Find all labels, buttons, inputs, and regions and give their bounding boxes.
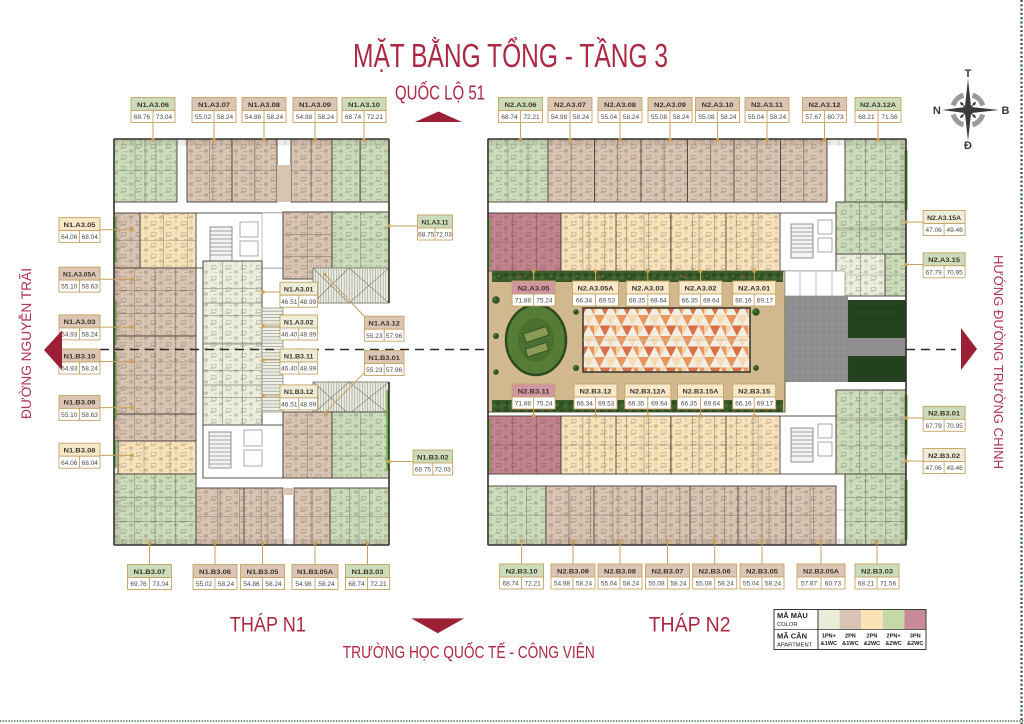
svg-text:N2.B3.12: N2.B3.12 bbox=[580, 388, 612, 395]
svg-text:49.46: 49.46 bbox=[946, 465, 963, 472]
svg-text:55.10: 55.10 bbox=[61, 284, 78, 291]
svg-text:N2.B3.15A: N2.B3.15A bbox=[683, 388, 719, 395]
svg-text:58.24: 58.24 bbox=[720, 114, 737, 121]
svg-text:69.64: 69.64 bbox=[704, 401, 721, 408]
svg-text:B: B bbox=[1002, 105, 1010, 117]
svg-text:73.04: 73.04 bbox=[156, 114, 173, 121]
svg-text:MÃ CĂN: MÃ CĂN bbox=[777, 632, 807, 641]
svg-text:71.56: 71.56 bbox=[881, 114, 898, 121]
svg-text:2PN: 2PN bbox=[867, 634, 878, 640]
svg-text:55.08: 55.08 bbox=[698, 114, 715, 121]
svg-text:58.24: 58.24 bbox=[267, 114, 284, 121]
svg-text:APARTMENT: APARTMENT bbox=[777, 643, 813, 649]
svg-text:N1.B3.01: N1.B3.01 bbox=[368, 355, 400, 362]
svg-text:N1.B3.10: N1.B3.10 bbox=[64, 353, 96, 360]
svg-text:66.34: 66.34 bbox=[577, 401, 594, 408]
svg-text:N2.B3.08: N2.B3.08 bbox=[604, 568, 636, 575]
svg-text:75.24: 75.24 bbox=[536, 401, 553, 408]
svg-text:58.24: 58.24 bbox=[82, 332, 99, 339]
svg-text:69.53: 69.53 bbox=[599, 298, 616, 305]
svg-text:69.64: 69.64 bbox=[651, 401, 668, 408]
svg-text:58.24: 58.24 bbox=[318, 581, 335, 588]
svg-text:69.53: 69.53 bbox=[598, 401, 615, 408]
svg-text:72.21: 72.21 bbox=[524, 581, 541, 588]
svg-text:N1.A3.10: N1.A3.10 bbox=[348, 102, 380, 109]
svg-text:58.24: 58.24 bbox=[576, 581, 593, 588]
svg-text:60.73: 60.73 bbox=[827, 114, 844, 121]
svg-text:N1.A3.03: N1.A3.03 bbox=[64, 319, 96, 326]
svg-text:N1.B3.06: N1.B3.06 bbox=[199, 569, 231, 576]
svg-text:54.86: 54.86 bbox=[245, 114, 262, 121]
svg-text:69.64: 69.64 bbox=[703, 298, 720, 305]
svg-text:70.95: 70.95 bbox=[946, 269, 963, 276]
svg-text:69.17: 69.17 bbox=[757, 401, 774, 408]
svg-text:58.24: 58.24 bbox=[265, 581, 282, 588]
svg-text:QUỐC LỘ 51: QUỐC LỘ 51 bbox=[395, 81, 485, 105]
svg-text:58.24: 58.24 bbox=[218, 581, 235, 588]
svg-text:N2.B3.15: N2.B3.15 bbox=[738, 388, 770, 395]
svg-text:N2.A3.15: N2.A3.15 bbox=[928, 257, 960, 264]
svg-text:66.16: 66.16 bbox=[735, 298, 752, 305]
svg-text:N2.B3.12A: N2.B3.12A bbox=[630, 388, 666, 395]
svg-text:71.56: 71.56 bbox=[880, 581, 897, 588]
svg-text:N2.A3.10: N2.A3.10 bbox=[702, 102, 734, 109]
svg-text:N1.A3.06: N1.A3.06 bbox=[137, 102, 169, 109]
svg-text:N1.A3.08: N1.A3.08 bbox=[248, 102, 280, 109]
svg-text:68.04: 68.04 bbox=[82, 460, 99, 467]
svg-text:69.76: 69.76 bbox=[130, 581, 147, 588]
svg-text:58.24: 58.24 bbox=[673, 114, 690, 121]
svg-text:N2.B3.05: N2.B3.05 bbox=[746, 568, 778, 575]
svg-text:66.34: 66.34 bbox=[576, 298, 593, 305]
svg-text:N2.B3.11: N2.B3.11 bbox=[518, 388, 550, 395]
svg-text:N1.A3.11: N1.A3.11 bbox=[422, 219, 449, 226]
svg-text:68.21: 68.21 bbox=[858, 114, 875, 121]
svg-text:&2WC: &2WC bbox=[907, 641, 923, 647]
svg-text:Đ: Đ bbox=[964, 140, 972, 152]
svg-text:54.98: 54.98 bbox=[554, 581, 571, 588]
svg-text:TRƯỜNG HỌC QUỐC TẾ - CÔNG VIÊN: TRƯỜNG HỌC QUỐC TẾ - CÔNG VIÊN bbox=[343, 641, 595, 662]
svg-text:55.04: 55.04 bbox=[601, 581, 618, 588]
svg-text:N2.B3.07: N2.B3.07 bbox=[652, 568, 684, 575]
svg-text:N2.A3.05: N2.A3.05 bbox=[518, 285, 550, 292]
svg-text:72.03: 72.03 bbox=[435, 467, 452, 474]
svg-text:MÃ MÀU: MÃ MÀU bbox=[777, 611, 808, 620]
svg-text:66.35: 66.35 bbox=[681, 401, 698, 408]
svg-text:N1.A3.02: N1.A3.02 bbox=[284, 319, 314, 326]
svg-text:COLOR: COLOR bbox=[777, 622, 798, 628]
svg-text:66.35: 66.35 bbox=[629, 298, 646, 305]
svg-text:N1.B3.05: N1.B3.05 bbox=[247, 569, 279, 576]
svg-text:58.24: 58.24 bbox=[82, 366, 99, 373]
svg-text:58.24: 58.24 bbox=[718, 581, 735, 588]
svg-text:N2.A3.02: N2.A3.02 bbox=[685, 285, 717, 292]
svg-text:55.04: 55.04 bbox=[601, 114, 618, 121]
svg-text:N2.A3.01: N2.A3.01 bbox=[738, 285, 770, 292]
svg-text:N2.B3.01: N2.B3.01 bbox=[928, 411, 960, 418]
svg-text:46.40: 46.40 bbox=[281, 332, 298, 339]
svg-text:55.02: 55.02 bbox=[195, 114, 212, 121]
svg-text:N2.A3.06: N2.A3.06 bbox=[505, 102, 537, 109]
svg-text:54.98: 54.98 bbox=[296, 114, 313, 121]
svg-text:68.74: 68.74 bbox=[501, 114, 518, 121]
svg-text:68.74: 68.74 bbox=[502, 581, 519, 588]
svg-text:2PN+: 2PN+ bbox=[887, 634, 902, 640]
svg-text:57.67: 57.67 bbox=[801, 581, 818, 588]
svg-text:N2.A3.12: N2.A3.12 bbox=[809, 102, 841, 109]
svg-text:ĐƯỜNG NGUYỄN TRÃI: ĐƯỜNG NGUYỄN TRÃI bbox=[19, 268, 34, 419]
svg-text:N1.B3.09: N1.B3.09 bbox=[64, 400, 96, 407]
svg-text:57.67: 57.67 bbox=[805, 114, 822, 121]
svg-text:57.96: 57.96 bbox=[386, 367, 403, 374]
svg-text:75.24: 75.24 bbox=[536, 298, 553, 305]
svg-text:N2.A3.05A: N2.A3.05A bbox=[578, 285, 614, 292]
svg-text:58.24: 58.24 bbox=[217, 114, 234, 121]
svg-text:N2.A3.07: N2.A3.07 bbox=[554, 102, 586, 109]
svg-text:1PN+: 1PN+ bbox=[822, 634, 837, 640]
svg-text:55.08: 55.08 bbox=[651, 114, 668, 121]
svg-text:49.46: 49.46 bbox=[946, 227, 963, 234]
svg-text:67.79: 67.79 bbox=[925, 269, 942, 276]
svg-text:68.74: 68.74 bbox=[348, 581, 365, 588]
svg-text:N1.B3.12: N1.B3.12 bbox=[284, 389, 314, 396]
svg-text:T: T bbox=[965, 68, 972, 80]
svg-text:N1.B3.05A: N1.B3.05A bbox=[297, 569, 333, 576]
svg-text:N: N bbox=[933, 105, 941, 117]
svg-text:54.86: 54.86 bbox=[243, 581, 260, 588]
svg-text:64.06: 64.06 bbox=[61, 234, 78, 241]
svg-text:72.21: 72.21 bbox=[370, 581, 387, 588]
svg-text:N2.A3.12A: N2.A3.12A bbox=[860, 102, 896, 109]
svg-text:58.63: 58.63 bbox=[82, 412, 99, 419]
svg-text:71.88: 71.88 bbox=[515, 298, 532, 305]
svg-text:55.08: 55.08 bbox=[696, 581, 713, 588]
svg-text:46.51: 46.51 bbox=[281, 299, 298, 306]
svg-text:N1.A3.12: N1.A3.12 bbox=[368, 321, 400, 328]
svg-text:N1.B3.07: N1.B3.07 bbox=[134, 569, 166, 576]
svg-text:73.04: 73.04 bbox=[152, 581, 169, 588]
svg-text:69.64: 69.64 bbox=[650, 298, 667, 305]
svg-text:72.21: 72.21 bbox=[523, 114, 540, 121]
svg-text:58.24: 58.24 bbox=[623, 114, 640, 121]
svg-text:48.99: 48.99 bbox=[300, 402, 317, 409]
svg-text:2PN: 2PN bbox=[845, 634, 856, 640]
svg-text:71.88: 71.88 bbox=[515, 401, 532, 408]
svg-text:68.75: 68.75 bbox=[415, 467, 432, 474]
svg-text:67.79: 67.79 bbox=[925, 423, 942, 430]
svg-text:N1.B3.11: N1.B3.11 bbox=[284, 353, 314, 360]
svg-text:66.16: 66.16 bbox=[735, 401, 752, 408]
svg-text:N1.A3.05: N1.A3.05 bbox=[64, 222, 96, 229]
svg-text:55.04: 55.04 bbox=[748, 114, 765, 121]
svg-text:64.06: 64.06 bbox=[61, 460, 78, 467]
svg-text:68.75: 68.75 bbox=[418, 232, 435, 239]
svg-text:THÁP N1: THÁP N1 bbox=[230, 614, 306, 637]
svg-text:68.74: 68.74 bbox=[345, 114, 362, 121]
svg-text:58.24: 58.24 bbox=[318, 114, 335, 121]
svg-text:N2.A3.09: N2.A3.09 bbox=[654, 102, 686, 109]
svg-text:&1WC: &1WC bbox=[821, 641, 837, 647]
svg-text:48.99: 48.99 bbox=[300, 332, 317, 339]
svg-text:55.23: 55.23 bbox=[366, 333, 383, 340]
svg-text:55.23: 55.23 bbox=[366, 367, 383, 374]
svg-text:72.21: 72.21 bbox=[367, 114, 384, 121]
svg-text:58.24: 58.24 bbox=[765, 581, 782, 588]
svg-text:N2.A3.15A: N2.A3.15A bbox=[927, 215, 961, 222]
svg-text:&2WC: &2WC bbox=[864, 641, 880, 647]
svg-text:54.93: 54.93 bbox=[61, 366, 78, 373]
svg-text:N2.B3.09: N2.B3.09 bbox=[557, 568, 589, 575]
svg-text:N1.A3.05A: N1.A3.05A bbox=[63, 271, 96, 278]
svg-text:47.06: 47.06 bbox=[925, 465, 942, 472]
svg-text:46.40: 46.40 bbox=[281, 366, 298, 373]
svg-text:N1.A3.07: N1.A3.07 bbox=[198, 102, 230, 109]
svg-text:54.93: 54.93 bbox=[61, 332, 78, 339]
svg-text:69.17: 69.17 bbox=[757, 298, 774, 305]
svg-text:N1.B3.02: N1.B3.02 bbox=[417, 454, 449, 461]
svg-text:58.24: 58.24 bbox=[670, 581, 687, 588]
svg-text:55.02: 55.02 bbox=[196, 581, 213, 588]
svg-text:N2.A3.11: N2.A3.11 bbox=[751, 102, 783, 109]
svg-text:N1.B3.08: N1.B3.08 bbox=[64, 448, 96, 455]
svg-text:60.73: 60.73 bbox=[825, 581, 842, 588]
svg-text:66.35: 66.35 bbox=[682, 298, 699, 305]
svg-text:48.99: 48.99 bbox=[300, 366, 317, 373]
svg-text:55.10: 55.10 bbox=[61, 412, 78, 419]
svg-text:68.21: 68.21 bbox=[858, 581, 875, 588]
svg-text:N2.A3.03: N2.A3.03 bbox=[632, 285, 664, 292]
svg-text:N1.B3.03: N1.B3.03 bbox=[352, 569, 384, 576]
svg-text:58.24: 58.24 bbox=[573, 114, 590, 121]
svg-text:58.63: 58.63 bbox=[82, 284, 99, 291]
svg-text:N2.B3.10: N2.B3.10 bbox=[506, 568, 538, 575]
svg-text:66.35: 66.35 bbox=[628, 401, 645, 408]
svg-text:47.06: 47.06 bbox=[925, 227, 942, 234]
svg-text:58.24: 58.24 bbox=[770, 114, 787, 121]
svg-text:68.04: 68.04 bbox=[82, 234, 99, 241]
svg-text:69.76: 69.76 bbox=[134, 114, 151, 121]
svg-text:N1.A3.09: N1.A3.09 bbox=[299, 102, 331, 109]
svg-text:54.98: 54.98 bbox=[295, 581, 312, 588]
svg-text:N2.B3.05A: N2.B3.05A bbox=[803, 568, 839, 575]
svg-text:70.95: 70.95 bbox=[946, 423, 963, 430]
svg-text:&2WC: &2WC bbox=[885, 641, 901, 647]
svg-text:N1.A3.01: N1.A3.01 bbox=[284, 287, 314, 294]
svg-text:48.99: 48.99 bbox=[300, 299, 317, 306]
svg-text:HƯỚNG ĐƯỜNG TRƯỜNG CHINH: HƯỚNG ĐƯỜNG TRƯỜNG CHINH bbox=[991, 255, 1006, 469]
svg-text:46.51: 46.51 bbox=[281, 402, 298, 409]
svg-text:THÁP N2: THÁP N2 bbox=[649, 614, 731, 637]
svg-text:55.04: 55.04 bbox=[743, 581, 760, 588]
svg-text:&1WC: &1WC bbox=[842, 641, 858, 647]
svg-text:N2.B3.03: N2.B3.03 bbox=[861, 568, 893, 575]
svg-text:3PN: 3PN bbox=[910, 634, 921, 640]
svg-text:58.24: 58.24 bbox=[623, 581, 640, 588]
svg-text:72.03: 72.03 bbox=[436, 232, 453, 239]
svg-text:N2.B3.02: N2.B3.02 bbox=[928, 453, 960, 460]
svg-text:N2.B3.06: N2.B3.06 bbox=[699, 568, 731, 575]
svg-text:55.08: 55.08 bbox=[648, 581, 665, 588]
svg-text:MẶT BẰNG TỔNG - TẦNG 3: MẶT BẰNG TỔNG - TẦNG 3 bbox=[353, 37, 668, 74]
svg-text:54.98: 54.98 bbox=[551, 114, 568, 121]
svg-text:N2.A3.08: N2.A3.08 bbox=[604, 102, 636, 109]
svg-text:57.96: 57.96 bbox=[386, 333, 403, 340]
